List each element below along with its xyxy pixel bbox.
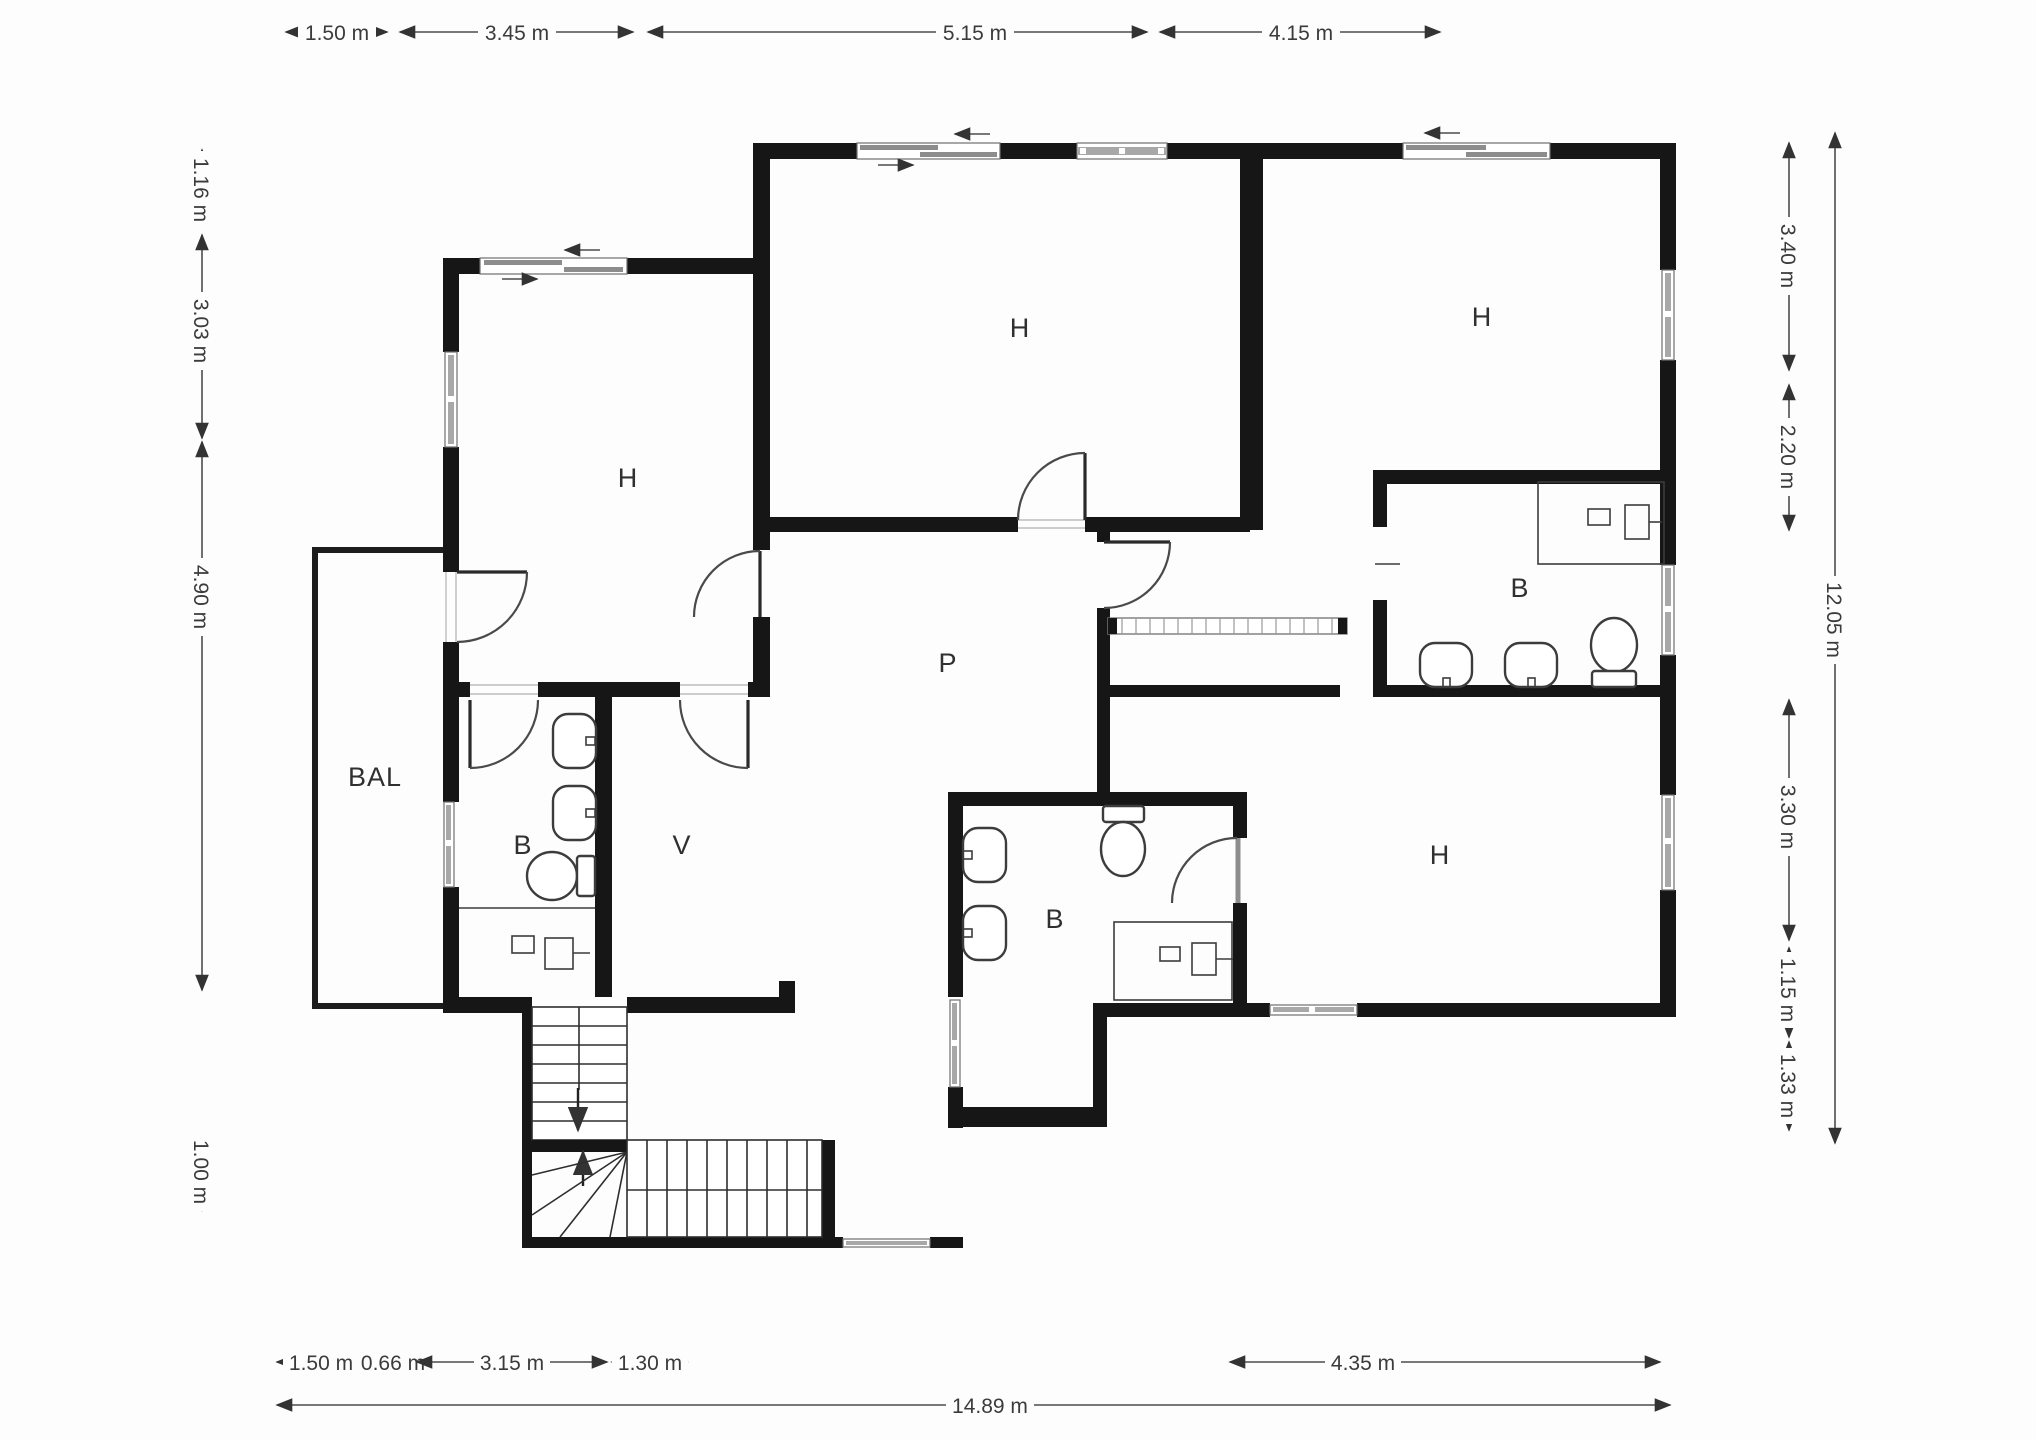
wall-segment	[1660, 890, 1676, 1017]
dim-right-4: 1.15 m	[1776, 948, 1802, 1037]
room-label-dressing: V	[672, 830, 691, 860]
wall-segment	[753, 143, 857, 159]
svg-text:2.20 m: 2.20 m	[1776, 425, 1799, 489]
window-icon	[1662, 795, 1674, 890]
dim-bottom-3: 3.15 m	[417, 1349, 607, 1375]
washer-icon	[512, 936, 590, 969]
dim-right-3: 3.30 m	[1776, 700, 1802, 940]
wall-segment	[1107, 685, 1340, 697]
washbasin-icon	[553, 786, 596, 840]
window-icon	[444, 802, 454, 887]
svg-text:1.50 m: 1.50 m	[289, 1352, 353, 1375]
dim-left-3: 4.90 m	[189, 442, 215, 990]
room-label-bath-bottom-center: B	[1045, 904, 1064, 934]
shower-icon	[1538, 482, 1664, 564]
svg-text:4.90 m: 4.90 m	[189, 565, 212, 629]
dimensions: 1.50 m 3.45 m 5.15 m 4.15 m 1.16 m	[189, 19, 1848, 1418]
wall-segment	[443, 887, 459, 1013]
svg-text:4.35 m: 4.35 m	[1331, 1352, 1395, 1375]
svg-text:5.15 m: 5.15 m	[943, 22, 1007, 45]
toilet-icon	[527, 852, 595, 900]
room-label-balcony: BAL	[348, 762, 402, 792]
dim-bottom-4: 1.30 m	[612, 1349, 688, 1375]
door-hall-room-icon	[694, 551, 760, 617]
washbasin-icon	[963, 906, 1006, 960]
balcony-wall	[312, 1003, 443, 1009]
dim-bottom-1: 1.50 m	[277, 1349, 363, 1375]
wall-segment	[948, 792, 963, 997]
window-icon	[1270, 1005, 1357, 1015]
wall-segment	[1093, 1013, 1107, 1107]
balcony-wall	[312, 547, 443, 553]
wall-segment	[443, 642, 459, 802]
wall-segment	[595, 697, 612, 997]
svg-text:3.30 m: 3.30 m	[1776, 785, 1799, 849]
wall-segment	[963, 1107, 1107, 1127]
svg-text:12.05 m: 12.05 m	[1822, 582, 1845, 658]
svg-text:3.40 m: 3.40 m	[1776, 224, 1799, 288]
wall-segment	[822, 1140, 835, 1248]
wall-segment	[1550, 143, 1676, 159]
dim-right-5: 1.33 m	[1776, 1042, 1802, 1130]
svg-text:1.16 m: 1.16 m	[189, 158, 212, 222]
svg-text:1.15 m: 1.15 m	[1776, 958, 1799, 1022]
sliding-window-icon	[1403, 133, 1550, 159]
window-icon	[1662, 565, 1674, 655]
floor-plan-canvas: H H H H B B B P V BAL 1.50 m 3.45 m 5.15…	[0, 0, 2036, 1440]
dim-left-4: 1.00 m	[189, 1133, 215, 1211]
svg-text:3.15 m: 3.15 m	[480, 1352, 544, 1375]
toilet-icon	[1591, 618, 1637, 687]
wall-segment	[1167, 143, 1403, 159]
dim-top-1: 1.50 m	[286, 19, 387, 45]
dim-right-1: 3.40 m	[1776, 143, 1802, 370]
washbasin-icon	[553, 714, 596, 768]
dim-bottom-5: 4.35 m	[1230, 1349, 1660, 1375]
svg-text:14.89 m: 14.89 m	[952, 1395, 1028, 1418]
wall-segment	[1240, 159, 1263, 530]
sliding-window-icon	[857, 143, 1000, 165]
door-vestibule-icon	[1104, 542, 1170, 608]
floor-plan-page: H H H H B B B P V BAL 1.50 m 3.45 m 5.15…	[0, 0, 2036, 1440]
svg-text:3.45 m: 3.45 m	[485, 22, 549, 45]
wall-segment	[1357, 1003, 1660, 1017]
window-icon	[950, 1000, 960, 1087]
dim-left-2: 3.03 m	[189, 235, 215, 438]
wall-segment	[1373, 470, 1387, 527]
balcony-wall	[312, 547, 318, 1009]
door-dressing-icon	[680, 685, 748, 768]
wall-segment	[1660, 655, 1676, 795]
door-bath-left-icon	[470, 685, 538, 768]
wall-segment	[763, 517, 1018, 532]
svg-text:3.03 m: 3.03 m	[189, 299, 212, 363]
room-label-h-bottom-right: H	[1430, 840, 1451, 870]
wall-segment	[1093, 1003, 1270, 1017]
room-label-hall: P	[938, 648, 957, 678]
wall-segment	[627, 997, 795, 1013]
dim-top-2: 3.45 m	[400, 19, 633, 45]
room-label-bath-top-right: B	[1510, 573, 1529, 603]
svg-text:1.33 m: 1.33 m	[1776, 1054, 1799, 1118]
wall-segment	[443, 258, 480, 274]
dim-top-3: 5.15 m	[648, 19, 1147, 45]
wall-segment	[443, 447, 459, 572]
dim-bottom-total: 14.89 m	[277, 1392, 1670, 1418]
svg-text:4.15 m: 4.15 m	[1269, 22, 1333, 45]
wall-segment	[1085, 517, 1250, 532]
washbasin-icon	[1420, 643, 1472, 687]
door-bath-bottom-icon	[1172, 838, 1238, 903]
wall-segment	[1660, 360, 1676, 565]
wall-segment	[522, 1237, 843, 1248]
washbasin-icon	[1505, 643, 1557, 687]
balcony-door-icon	[446, 572, 527, 642]
wall-segment	[538, 682, 680, 697]
closet-icon	[1108, 618, 1347, 634]
window-icon	[1662, 270, 1674, 360]
wall-segment	[522, 1007, 532, 1248]
room-label-h-top-left: H	[618, 463, 639, 493]
dim-right-total: 12.05 m	[1822, 133, 1848, 1143]
wall-segment	[748, 682, 770, 697]
sliding-window-icon	[480, 250, 627, 279]
dim-top-4: 4.15 m	[1160, 19, 1440, 45]
door-central-room-icon	[1018, 453, 1085, 528]
room-labels: H H H H B B B P V BAL	[348, 302, 1530, 934]
dim-left-1: 1.16 m	[189, 150, 215, 229]
wall-segment	[443, 997, 532, 1013]
washbasin-icon	[963, 828, 1006, 882]
wall-segment	[1233, 792, 1247, 838]
wall-segment	[1000, 143, 1077, 159]
wall-segment	[930, 1237, 963, 1248]
shower-icon	[1114, 922, 1233, 1000]
svg-text:0.66 m: 0.66 m	[361, 1352, 425, 1375]
wall-segment	[948, 792, 1240, 806]
room-label-h-top-center: H	[1010, 313, 1031, 343]
wall-segment	[1233, 903, 1247, 1003]
stairs-icon	[532, 1007, 822, 1237]
wall-segment	[459, 682, 470, 697]
wall-segment	[753, 159, 770, 550]
svg-text:1.30 m: 1.30 m	[618, 1352, 682, 1375]
room-label-bath-bottom-left: B	[513, 830, 532, 860]
wall-segment	[779, 981, 795, 997]
svg-text:1.00 m: 1.00 m	[189, 1140, 212, 1204]
dim-right-2: 2.20 m	[1776, 385, 1802, 530]
wall-segment	[627, 258, 770, 274]
window-icon	[843, 1239, 930, 1247]
wall-segment	[1373, 600, 1387, 697]
window-icon	[445, 352, 457, 447]
toilet-icon	[1101, 806, 1145, 876]
room-label-h-top-right: H	[1472, 302, 1493, 332]
svg-text:1.50 m: 1.50 m	[305, 22, 369, 45]
wall-segment	[948, 1087, 963, 1128]
wall-segment	[1097, 608, 1110, 792]
wall-segment	[1660, 143, 1676, 270]
